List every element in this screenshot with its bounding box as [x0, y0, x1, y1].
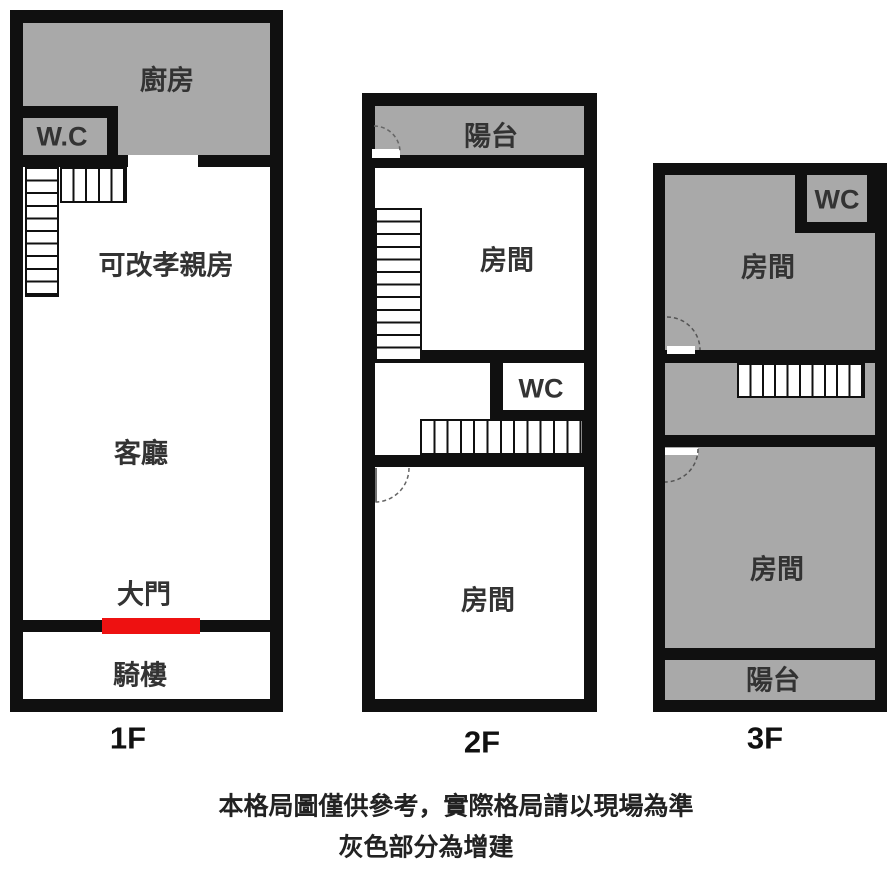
- floor-3f-inner: WC 房間 房間 陽台: [665, 175, 875, 700]
- living-room-label: 客廳: [114, 441, 168, 468]
- wall-balcony-2f: [375, 155, 584, 168]
- stairs-2f-vertical: [375, 208, 422, 363]
- wall-room-lower-2f: [375, 455, 584, 467]
- main-door-red-marker: [102, 618, 200, 634]
- wc-label-1f: W.C: [37, 124, 88, 151]
- room-upper-label-2f: 房間: [480, 248, 534, 275]
- arcade-label: 騎樓: [113, 663, 167, 690]
- floor-label-3f: 3F: [747, 723, 783, 754]
- wall-kitchen-right: [198, 155, 270, 167]
- room-lower-label-3f: 房間: [750, 557, 804, 584]
- balcony-label-2f: 陽台: [464, 124, 518, 151]
- room-lower-label-2f: 房間: [461, 588, 515, 615]
- wall-wc-left-2f: [490, 350, 503, 419]
- floor-3f: WC 房間 房間 陽台: [653, 163, 887, 712]
- gray-addition-note: 灰色部分為增建: [338, 836, 513, 861]
- balcony-label-3f: 陽台: [746, 668, 800, 695]
- wc-label-2f: WC: [519, 376, 564, 403]
- stairs-1f-horizontal: [60, 167, 127, 203]
- wall-kitchen-left: [23, 155, 128, 167]
- kitchen-label: 廚房: [140, 68, 194, 95]
- floor-1f: 廚房 W.C 可改孝親房 客廳 大門 騎樓: [10, 10, 283, 712]
- wall-room-upper-2f: [422, 350, 584, 363]
- stairs-2f-horizontal: [420, 419, 584, 455]
- floor-plan: 廚房 W.C 可改孝親房 客廳 大門 騎樓 1F 陽台: [0, 0, 889, 879]
- stairs-1f-vertical: [25, 167, 59, 297]
- door-swing-room-upper-3f: [667, 317, 701, 351]
- wc-label-3f: WC: [815, 187, 860, 214]
- flex-room-label: 可改孝親房: [99, 253, 234, 280]
- floor-label-2f: 2F: [464, 727, 500, 758]
- stairs-3f-horizontal: [737, 363, 865, 398]
- door-swing-room-lower-2f: [375, 468, 410, 503]
- wall-balcony-3f: [665, 648, 875, 660]
- disclaimer-note: 本格局圖僅供參考，實際格局請以現場為準: [218, 795, 693, 820]
- floor-1f-inner: 廚房 W.C 可改孝親房 客廳 大門 騎樓: [23, 23, 270, 699]
- main-door-label: 大門: [117, 582, 171, 609]
- wall-stair-zone-3f: [665, 435, 875, 447]
- floor-2f-inner: 陽台 房間 WC 房間: [375, 106, 584, 699]
- wall-wc-bottom-2f: [490, 410, 584, 419]
- room-upper-label-3f: 房間: [741, 255, 795, 282]
- floor-label-1f: 1F: [110, 723, 146, 754]
- door-swing-balcony-2f: [374, 126, 401, 153]
- wall-room-upper-3f: [665, 350, 875, 363]
- door-swing-room-lower-3f: [665, 449, 699, 483]
- floor-2f: 陽台 房間 WC 房間: [362, 93, 597, 712]
